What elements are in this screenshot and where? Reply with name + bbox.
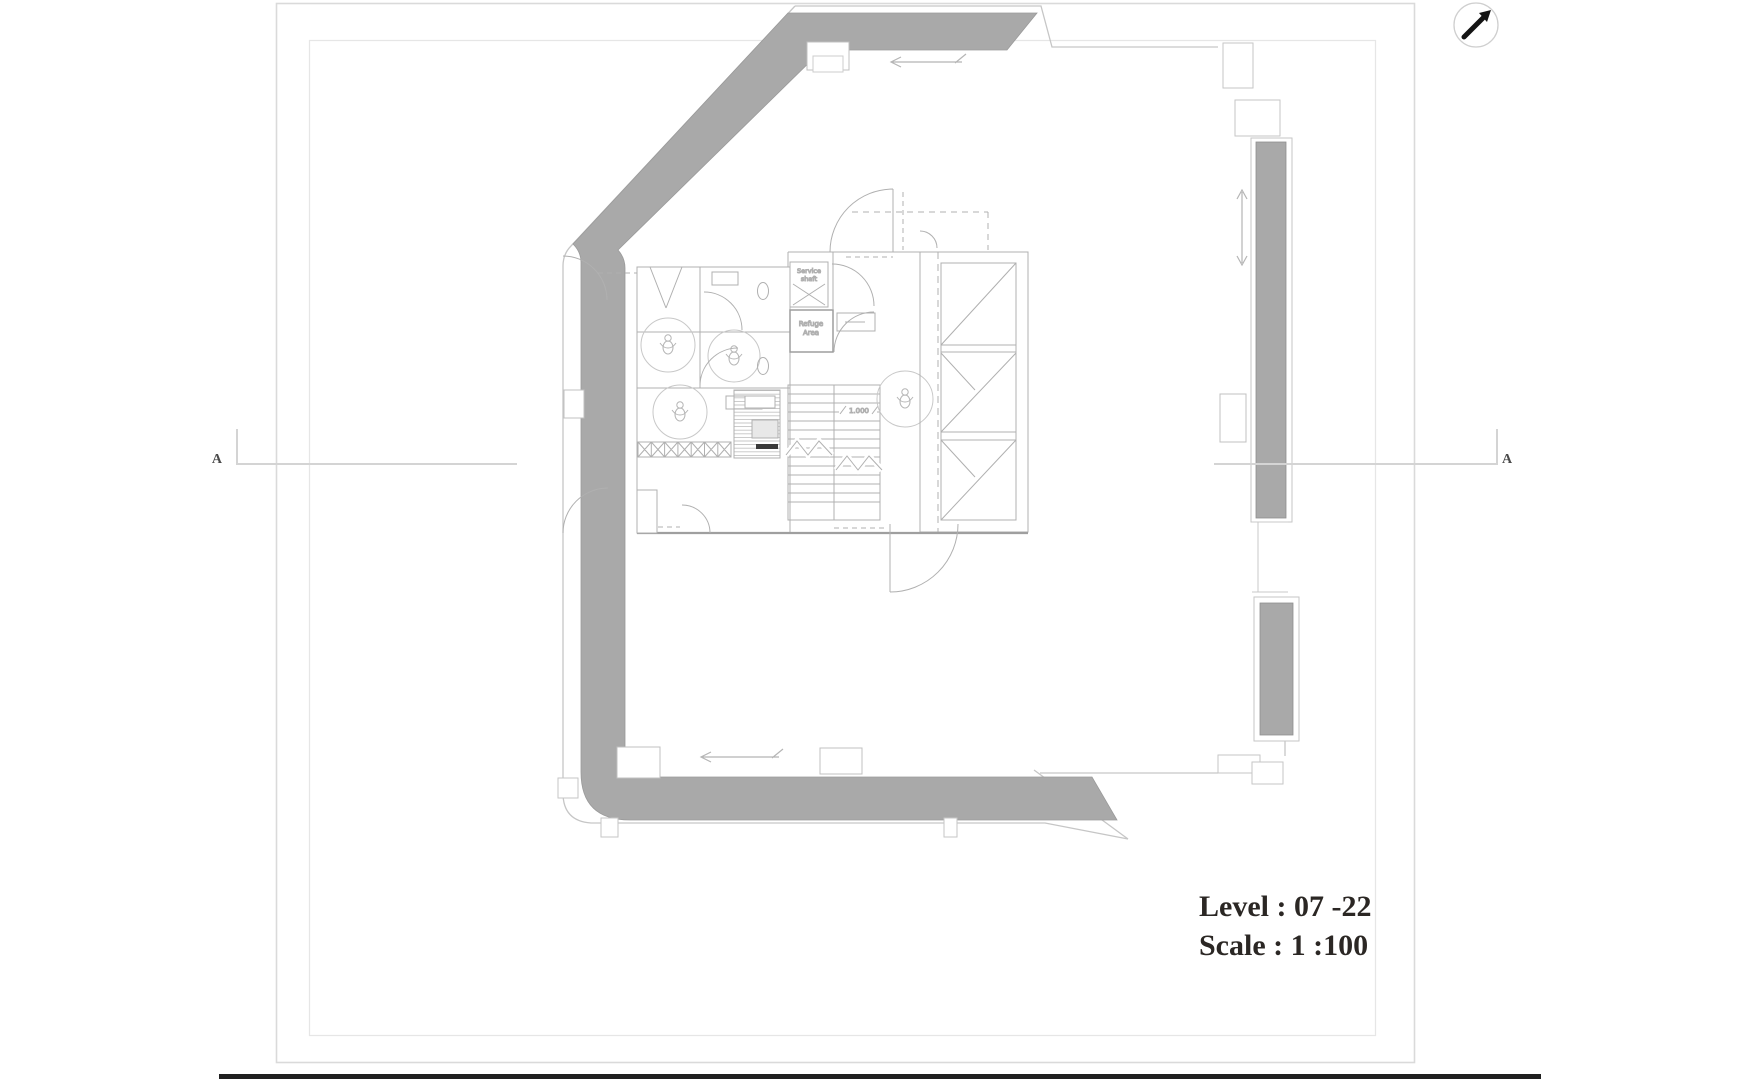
door-swing (830, 189, 893, 252)
section-line-left (237, 429, 517, 464)
inner-border (310, 41, 1376, 1036)
door-swing (832, 264, 874, 306)
bottom-edge-tab (601, 818, 618, 837)
refuge-area-label-line2: Area (803, 329, 819, 337)
shaft-hatch (734, 390, 780, 458)
section-marker-right: A (1502, 452, 1513, 467)
door-swing (920, 231, 937, 248)
right-facade (1218, 43, 1299, 784)
bottom-column (617, 747, 660, 778)
service-shaft: Service shaft (788, 252, 920, 307)
corner-column (1235, 100, 1280, 136)
corner-column (1223, 43, 1253, 88)
refuge-area: Refuge Area (790, 310, 833, 352)
core: Service shaft Refuge Area (563, 189, 1028, 592)
accessible-wc (877, 371, 933, 427)
door-swing (704, 292, 742, 330)
top-arrow (891, 54, 966, 67)
floor-plan-drawing: Service shaft Refuge Area (0, 0, 1755, 1080)
refuge-area-label-line1: Refuge (799, 320, 824, 328)
service-shaft-label-line1: Service (797, 267, 821, 275)
door-gap (1252, 522, 1288, 592)
door-swing (834, 312, 874, 352)
title-block: Level : 07 -22 Scale : 1 :100 (1199, 890, 1371, 962)
bottom-arrow (701, 749, 783, 762)
north-arrow-icon (1454, 3, 1498, 47)
left-wall-opening (564, 390, 584, 418)
corner-column (1252, 762, 1283, 784)
core-lobby (832, 212, 988, 352)
level-label: Level : 07 -22 (1199, 890, 1371, 923)
window-box (1220, 394, 1246, 442)
core-bottom (637, 490, 1028, 533)
bottom-opening (820, 748, 862, 774)
door-swing (890, 524, 958, 592)
building-outline (563, 6, 1285, 839)
bottom-edge-tab (944, 818, 957, 837)
elevator-bank (920, 231, 1028, 532)
drawing-sheet: Service shaft Refuge Area (0, 0, 1755, 1080)
service-shaft-label-line2: shaft (801, 275, 818, 283)
stair-level-label: 1.000 (849, 407, 869, 415)
grille-strip (638, 442, 731, 457)
door-swing (682, 505, 710, 533)
door-swing (700, 348, 738, 386)
double-swing-door (650, 267, 682, 308)
wall-bar (1256, 142, 1286, 518)
top-opening-frame (813, 56, 843, 72)
stair: 1.000 (786, 385, 882, 520)
section-marker-left: A (212, 452, 223, 467)
perimeter-wall-band (558, 13, 1117, 837)
left-edge-tab (558, 778, 578, 798)
bottom-rule (219, 1074, 1541, 1079)
scale-label: Scale : 1 :100 (1199, 929, 1368, 962)
wall-bar (1260, 603, 1293, 735)
direction-arrow (1237, 190, 1247, 265)
